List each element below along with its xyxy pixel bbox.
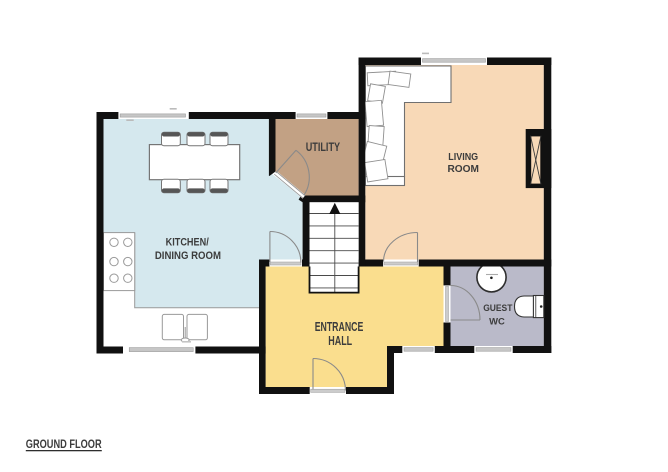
svg-text:WC: WC <box>489 316 505 326</box>
svg-text:ENTRANCE: ENTRANCE <box>315 319 364 334</box>
svg-text:DINING ROOM: DINING ROOM <box>155 250 221 262</box>
svg-text:ROOM: ROOM <box>447 164 479 175</box>
svg-text:LIVING: LIVING <box>448 152 478 163</box>
svg-text:UTILITY: UTILITY <box>306 140 340 154</box>
svg-text:HALL: HALL <box>328 333 352 348</box>
svg-text:GROUND FLOOR: GROUND FLOOR <box>26 437 102 451</box>
svg-text:GUEST: GUEST <box>483 303 512 313</box>
svg-text:KITCHEN/: KITCHEN/ <box>166 237 209 249</box>
